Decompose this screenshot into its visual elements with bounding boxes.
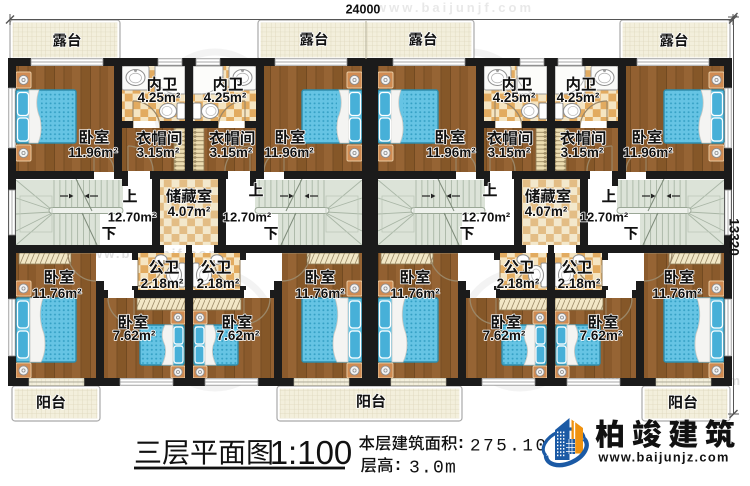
svg-text:12.70m²: 12.70m² bbox=[223, 210, 272, 225]
svg-text::: : bbox=[456, 435, 466, 454]
svg-text:2.18m²: 2.18m² bbox=[497, 276, 540, 291]
svg-text:7.62m²: 7.62m² bbox=[483, 328, 526, 343]
svg-text:www.baijunjf.com: www.baijunjf.com bbox=[375, 0, 534, 15]
svg-text:12.70m²: 12.70m² bbox=[580, 210, 629, 225]
svg-text:12.70m²: 12.70m² bbox=[108, 210, 157, 225]
svg-text:11.96m²: 11.96m² bbox=[264, 145, 314, 160]
svg-text:12.70m²: 12.70m² bbox=[462, 210, 511, 225]
svg-text:1:100: 1:100 bbox=[270, 434, 353, 471]
svg-text:7.62m²: 7.62m² bbox=[217, 328, 260, 343]
svg-text:2.18m²: 2.18m² bbox=[197, 276, 240, 291]
svg-text::: : bbox=[393, 457, 403, 476]
svg-text:11.96m²: 11.96m² bbox=[426, 145, 476, 160]
svg-text:7.62m²: 7.62m² bbox=[113, 328, 156, 343]
svg-text:2.18m²: 2.18m² bbox=[558, 276, 601, 291]
svg-text:2.18m²: 2.18m² bbox=[141, 276, 184, 291]
svg-text:4.07m²: 4.07m² bbox=[168, 204, 211, 219]
svg-text:3.15m²: 3.15m² bbox=[210, 145, 253, 160]
svg-text:4.25m²: 4.25m² bbox=[204, 90, 247, 105]
svg-text:7.62m²: 7.62m² bbox=[580, 328, 623, 343]
svg-text:3.0m: 3.0m bbox=[409, 459, 457, 479]
svg-text:11.76m²: 11.76m² bbox=[32, 286, 82, 301]
svg-text:13320: 13320 bbox=[727, 218, 742, 256]
svg-text:11.96m²: 11.96m² bbox=[68, 145, 118, 160]
svg-text:3.15m²: 3.15m² bbox=[488, 145, 531, 160]
svg-text:4.25m²: 4.25m² bbox=[493, 90, 536, 105]
svg-text:3.15m²: 3.15m² bbox=[561, 145, 604, 160]
svg-text:11.76m²: 11.76m² bbox=[295, 286, 345, 301]
svg-text:11.76m²: 11.76m² bbox=[390, 286, 440, 301]
svg-text:11.96m²: 11.96m² bbox=[623, 145, 673, 160]
svg-text:24000: 24000 bbox=[346, 3, 381, 17]
svg-text:4.25m²: 4.25m² bbox=[138, 90, 181, 105]
svg-text:www.baijunjz.com: www.baijunjz.com bbox=[597, 450, 729, 465]
svg-text:3.15m²: 3.15m² bbox=[137, 145, 180, 160]
svg-text:11.76m²: 11.76m² bbox=[652, 286, 702, 301]
svg-text:4.07m²: 4.07m² bbox=[525, 204, 568, 219]
svg-text:4.25m²: 4.25m² bbox=[557, 90, 600, 105]
